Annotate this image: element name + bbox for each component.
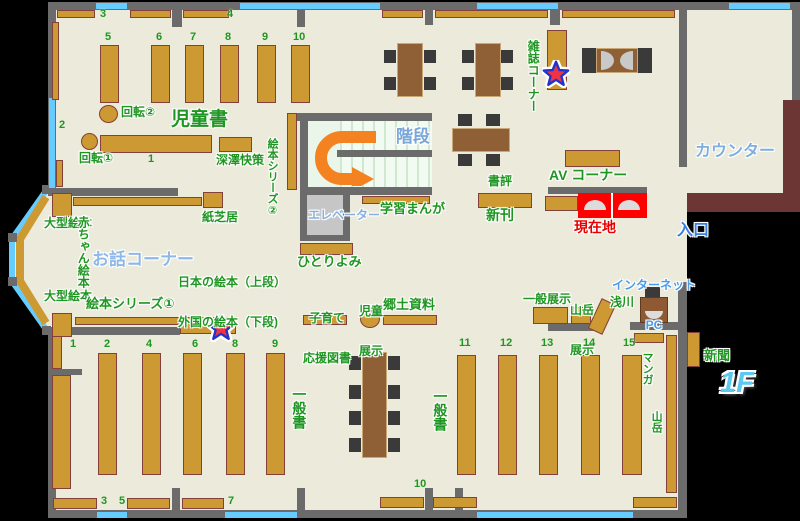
label-ippansho-left: 一般書: [291, 387, 306, 429]
label-kosodate-line2: 応援図書: [301, 352, 353, 365]
bookshelf-g15: [622, 355, 642, 475]
bookshelf-g4: [142, 353, 161, 475]
label-genzaichi: 現在地: [574, 220, 616, 235]
bookshelf: [382, 10, 423, 18]
wall-post: [297, 488, 305, 510]
label-kamishibai: 紙芝居: [202, 211, 238, 224]
label-jidosho: 児童書: [171, 110, 228, 131]
shelf-number: 1: [148, 153, 154, 165]
shelf-number: 5: [105, 31, 111, 43]
bookshelf-g10: [433, 497, 477, 508]
label-shinkan: 新刊: [486, 208, 514, 223]
label-ogata-ehon-lower: 大型絵本: [44, 290, 92, 303]
bookshelf-g11: [457, 355, 476, 475]
bookshelf: [130, 10, 171, 18]
bookshelf: [633, 497, 677, 508]
bookshelf-10: [291, 45, 310, 103]
fukazawa-shelf: [219, 137, 252, 152]
study-table: [397, 43, 423, 97]
chair: [349, 411, 361, 425]
stairs-top-wall: [297, 113, 432, 121]
chair: [388, 438, 400, 452]
shelf-number: 15: [623, 337, 635, 349]
kamishibai-shelf: [203, 192, 223, 208]
shelf-number: 5: [119, 495, 125, 507]
chair: [388, 411, 400, 425]
label-internet-line2: PC: [608, 319, 700, 332]
bookshelf: [183, 10, 229, 18]
label-ehon-series1: 絵本シリーズ①: [86, 297, 174, 311]
bookshelf-2: [52, 22, 59, 100]
shelf-number: 2: [104, 338, 110, 350]
chair: [384, 50, 396, 63]
bookshelf: [545, 196, 578, 211]
window: [240, 3, 380, 9]
shelf-number: 8: [232, 338, 238, 350]
large-picture-book-shelf: [52, 313, 72, 337]
label-sangaku: 山岳: [650, 411, 662, 433]
chair: [458, 154, 472, 166]
label-elevator: エレベーター: [308, 209, 380, 222]
study-table: [452, 128, 510, 152]
rotating-rack-1: [81, 133, 98, 150]
shelf-number: 1: [70, 338, 76, 350]
shelf-number: 10: [293, 31, 305, 43]
bookshelf-g6: [183, 353, 202, 475]
floor-label: 1F: [720, 368, 754, 400]
shelf-number: 8: [225, 31, 231, 43]
label-kyodo-shiryo: 郷土資料: [383, 298, 435, 312]
shelf-number: 11: [459, 337, 471, 349]
shelf-number: 3: [100, 8, 106, 20]
bookshelf-9: [257, 45, 276, 103]
wall-post: [172, 10, 182, 27]
stairs-left-wall: [300, 113, 308, 195]
bookshelf-g2: [98, 353, 117, 475]
library-floor-map: 3 4 5 6 7 8 9 10 2 1 回転② 児童書 回転① 深澤快策 絵本…: [0, 0, 800, 521]
wall-post: [172, 488, 180, 510]
label-counter: カウンター: [695, 143, 775, 161]
shelf-number: 4: [146, 338, 152, 350]
bookshelf: [57, 10, 95, 18]
service-counter: [687, 193, 800, 212]
chair: [388, 385, 400, 399]
marker-divider: [611, 193, 613, 218]
bench-end: [638, 48, 652, 73]
label-ippansho-right: 一般書: [432, 389, 447, 431]
rotating-rack-2: [99, 105, 118, 123]
shelf-number: 6: [156, 31, 162, 43]
chair: [424, 50, 436, 63]
label-internet-line1: インターネット: [608, 279, 700, 292]
kyodo-shiryo-shelf: [383, 315, 437, 325]
star-marker-magazine: [542, 60, 570, 88]
shinkan-shelf: [478, 193, 532, 208]
window: [477, 3, 558, 9]
bay-window: [0, 185, 52, 335]
ehon-series2-shelf: [287, 113, 297, 190]
shelf-number: 3: [101, 495, 107, 507]
bookshelf-g8: [226, 353, 245, 475]
bookshelf: [562, 10, 675, 18]
label-jido-tenji-line2: 展示: [358, 345, 384, 358]
stairs-bottom-wall: [300, 187, 432, 195]
chair: [501, 77, 513, 90]
bookshelf: [56, 160, 63, 187]
bookshelf-g13: [539, 355, 558, 475]
bookshelf-7: [185, 45, 204, 103]
wall-post: [425, 488, 433, 513]
label-fukazawa: 深澤快策: [216, 154, 264, 167]
shelf-number: 13: [541, 337, 553, 349]
bookshelf-g12: [498, 355, 517, 475]
label-manga: マンガ: [641, 352, 653, 385]
label-gakushu-manga: 学習まんが: [380, 202, 445, 216]
bookshelf-8: [220, 45, 239, 103]
chair: [424, 77, 436, 90]
window: [477, 512, 633, 518]
counter-divider-wall: [679, 10, 687, 167]
shelf-number: 7: [228, 495, 234, 507]
chair: [462, 77, 474, 90]
label-jido-tenji: 児童 展示: [358, 279, 384, 385]
shelf-number: 7: [190, 31, 196, 43]
sangaku-wall-shelf: [666, 335, 677, 493]
bookshelf-g9: [266, 353, 285, 475]
chair: [486, 114, 500, 126]
top-wall: [48, 2, 800, 10]
label-kaidan: 階段: [396, 128, 430, 147]
bookshelf-g1: [52, 375, 71, 489]
label-asakawa: 浅川: [610, 296, 634, 309]
shelf-number: 9: [272, 338, 278, 350]
bookshelf-5: [100, 45, 119, 103]
shelf-number: 14: [583, 337, 595, 349]
label-kaiten2: 回転②: [121, 106, 155, 119]
label-jido-tenji-line1: 児童: [358, 305, 384, 318]
label-kosodate: 子育て 応援図書: [301, 286, 353, 392]
label-ippan-tenji: 一般展示: [523, 293, 571, 306]
label-akachan-ehon: 赤ちゃん絵本: [76, 216, 89, 288]
label-shohyo: 書評: [488, 175, 512, 188]
window: [97, 512, 127, 518]
chair: [486, 154, 500, 166]
label-iriguchi: 入口: [677, 222, 709, 240]
bookshelf: [435, 10, 548, 18]
chair: [349, 438, 361, 452]
label-nihon-no-ehon: 日本の絵本（上段）: [178, 276, 286, 289]
label-ehon-series2: 絵本シリーズ②: [266, 138, 278, 217]
counter-room-right-wall: [792, 3, 800, 102]
shelf-number: 6: [192, 338, 198, 350]
label-sangaku-tenji: 山岳 展示: [568, 278, 596, 384]
label-av-corner: AV コーナー: [549, 168, 627, 183]
chair: [462, 50, 474, 63]
large-picture-book-shelf: [52, 193, 72, 217]
av-shelf: [565, 150, 620, 167]
label-shinbun: 新聞: [704, 349, 730, 363]
bookshelf-1: [100, 135, 212, 153]
window: [729, 3, 790, 9]
bench-end: [582, 48, 596, 73]
bookshelf-6: [151, 45, 170, 103]
label-sangaku-tenji-line1: 山岳: [568, 304, 596, 317]
window: [225, 512, 297, 518]
shelf-number: 12: [500, 337, 512, 349]
chair: [458, 114, 472, 126]
bookshelf-g10: [380, 497, 424, 508]
shelf-number: 9: [262, 31, 268, 43]
shelf-number: 4: [227, 8, 233, 20]
shelf-number: 2: [59, 119, 65, 131]
bookshelf-g1: [52, 336, 62, 369]
chair: [384, 77, 396, 90]
chair: [501, 50, 513, 63]
label-hitoriyomi: ひとりよみ: [297, 255, 362, 269]
window: [49, 98, 55, 188]
wall-post: [425, 2, 433, 25]
stairs-uturn-arrow: [312, 128, 382, 186]
study-table: [475, 43, 501, 97]
picture-book-shelf: [73, 197, 202, 206]
shelf-number: 10: [414, 478, 426, 490]
chair: [388, 356, 400, 370]
bookshelf-g7: [182, 498, 224, 509]
label-gaikoku-no-ehon: 外国の絵本（下段): [178, 316, 286, 329]
service-counter: [783, 100, 800, 193]
label-zasshi-corner: 雑誌コーナー: [526, 40, 539, 112]
ehon-series1-shelf: [75, 317, 181, 325]
bookshelf-g3: [53, 498, 97, 509]
ippan-tenji-shelf: [533, 307, 568, 324]
label-kosodate-line1: 子育て: [301, 312, 353, 325]
label-kaiten1: 回転①: [79, 152, 113, 165]
bookshelf-g5: [127, 498, 170, 509]
